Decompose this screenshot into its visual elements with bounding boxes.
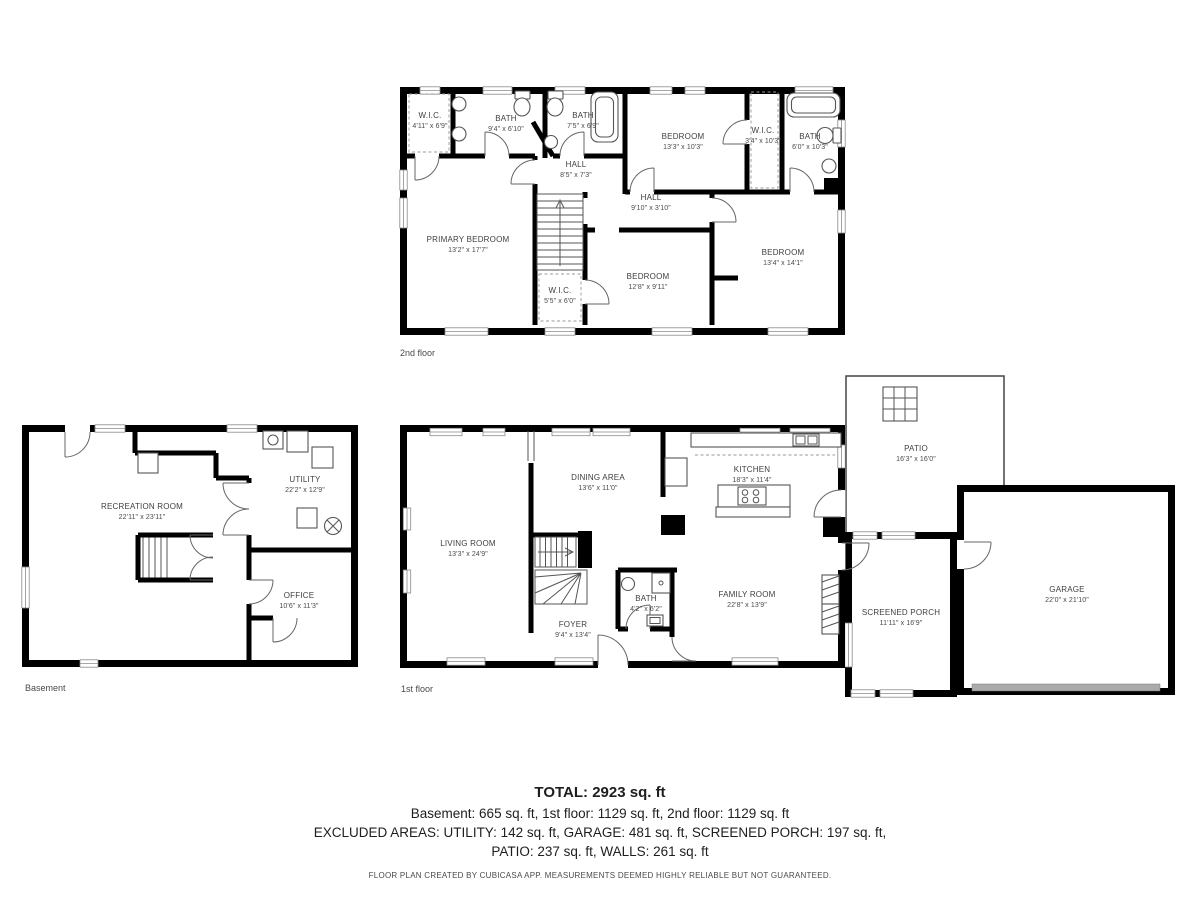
floorplan-page: W.I.C.4'11" x 6'9" BATH9'4" x 6'10" BATH…	[0, 0, 1200, 900]
garage-door	[972, 684, 1160, 691]
room-label-screened-porch: SCREENED PORCH11'11" x 16'9"	[862, 608, 940, 628]
island-stove-icon	[716, 485, 790, 517]
room-label-patio: PATIO16'3" x 16'0"	[896, 444, 936, 464]
room-label-wic-2: W.I.C.3'4" x 10'3"	[745, 126, 781, 146]
room-label-bedroom-1: BEDROOM13'3" x 10'3"	[662, 132, 705, 152]
room-label-recreation-room: RECREATION ROOM22'11" x 23'11"	[101, 502, 183, 522]
room-label-hall-1: HALL8'5" x 7'3"	[560, 160, 592, 180]
floor-areas-line: Basement: 665 sq. ft, 1st floor: 1129 sq…	[0, 804, 1200, 823]
fireplace-icon	[822, 575, 839, 634]
room-label-kitchen: KITCHEN18'3" x 11'4"	[732, 465, 771, 485]
room-label-bedroom-2: BEDROOM12'8" x 9'11"	[627, 272, 670, 292]
room-label-hall-2: HALL9'10" x 3'10"	[631, 193, 671, 213]
room-label-garage: GARAGE22'0" x 21'10"	[1045, 585, 1089, 605]
room-label-bath-1: BATH9'4" x 6'10"	[488, 114, 524, 134]
total-area: TOTAL: 2923 sq. ft	[0, 784, 1200, 801]
excluded-areas-line-2: PATIO: 237 sq. ft, WALLS: 261 sq. ft	[0, 842, 1200, 861]
second-floor-plan	[395, 80, 855, 355]
disclaimer-text: FLOOR PLAN CREATED BY CUBICASA APP. MEAS…	[0, 871, 1200, 880]
floor-tag-basement: Basement	[25, 683, 66, 693]
walls	[403, 88, 845, 332]
floor-tag-first: 1st floor	[401, 684, 433, 694]
basement-plan	[20, 420, 360, 680]
room-label-bath-2: BATH7'5" x 6'9"	[567, 111, 599, 131]
excluded-areas-line-1: EXCLUDED AREAS: UTILITY: 142 sq. ft, GAR…	[0, 823, 1200, 842]
room-label-office: OFFICE10'6" x 11'3"	[279, 591, 318, 611]
grill-icon	[883, 387, 917, 421]
room-label-bath-first: BATH4'2" x 6'2"	[630, 594, 662, 614]
room-label-living-room: LIVING ROOM13'3" x 24'9"	[440, 539, 496, 559]
first-floor-plan	[395, 365, 1185, 705]
room-label-primary-bedroom: PRIMARY BEDROOM13'2" x 17'7"	[427, 235, 510, 255]
room-label-utility: UTILITY22'2" x 12'9"	[285, 475, 325, 495]
room-label-bath-3: BATH6'0" x 10'3"	[792, 132, 828, 152]
walls	[26, 425, 359, 667]
area-summary: TOTAL: 2923 sq. ft Basement: 665 sq. ft,…	[0, 784, 1200, 880]
room-label-bedroom-3: BEDROOM13'4" x 14'1"	[762, 248, 805, 268]
room-label-foyer: FOYER9'4" x 13'4"	[555, 620, 591, 640]
room-label-family-room: FAMILY ROOM22'8" x 13'9"	[718, 590, 775, 610]
room-label-wic-3: W.I.C.5'5" x 6'0"	[544, 286, 576, 306]
room-label-wic-1: W.I.C.4'11" x 6'9"	[412, 111, 447, 131]
floor-tag-second: 2nd floor	[400, 348, 435, 358]
room-label-dining-area: DINING AREA13'6" x 11'0"	[571, 473, 625, 493]
